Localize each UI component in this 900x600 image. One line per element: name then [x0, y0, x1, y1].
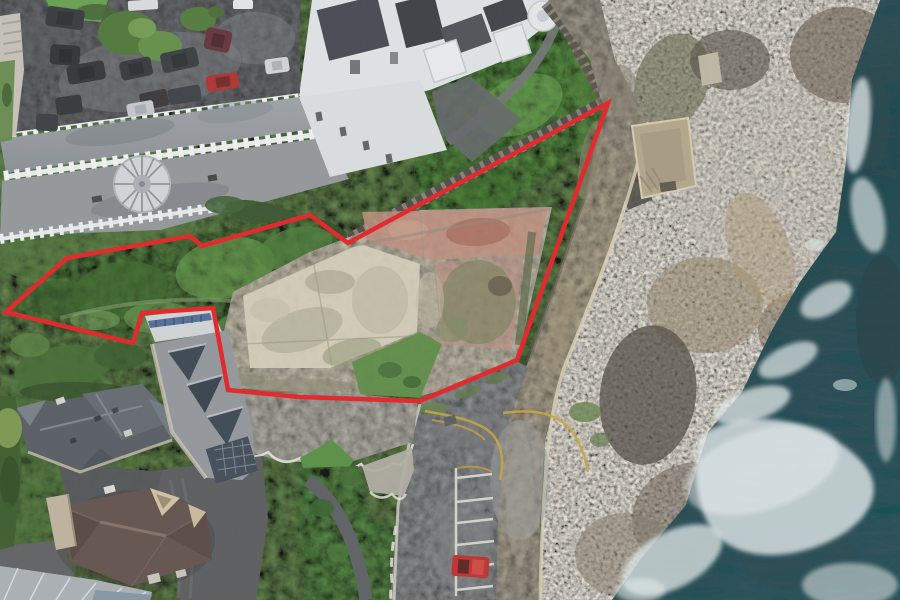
- photo-grain: [0, 0, 900, 600]
- aerial-photo: [0, 0, 900, 600]
- scene-layers: [0, 0, 900, 600]
- screenshot-root: [0, 0, 900, 600]
- aerial-photo-canvas: [0, 0, 900, 600]
- film-grain: [0, 0, 900, 600]
